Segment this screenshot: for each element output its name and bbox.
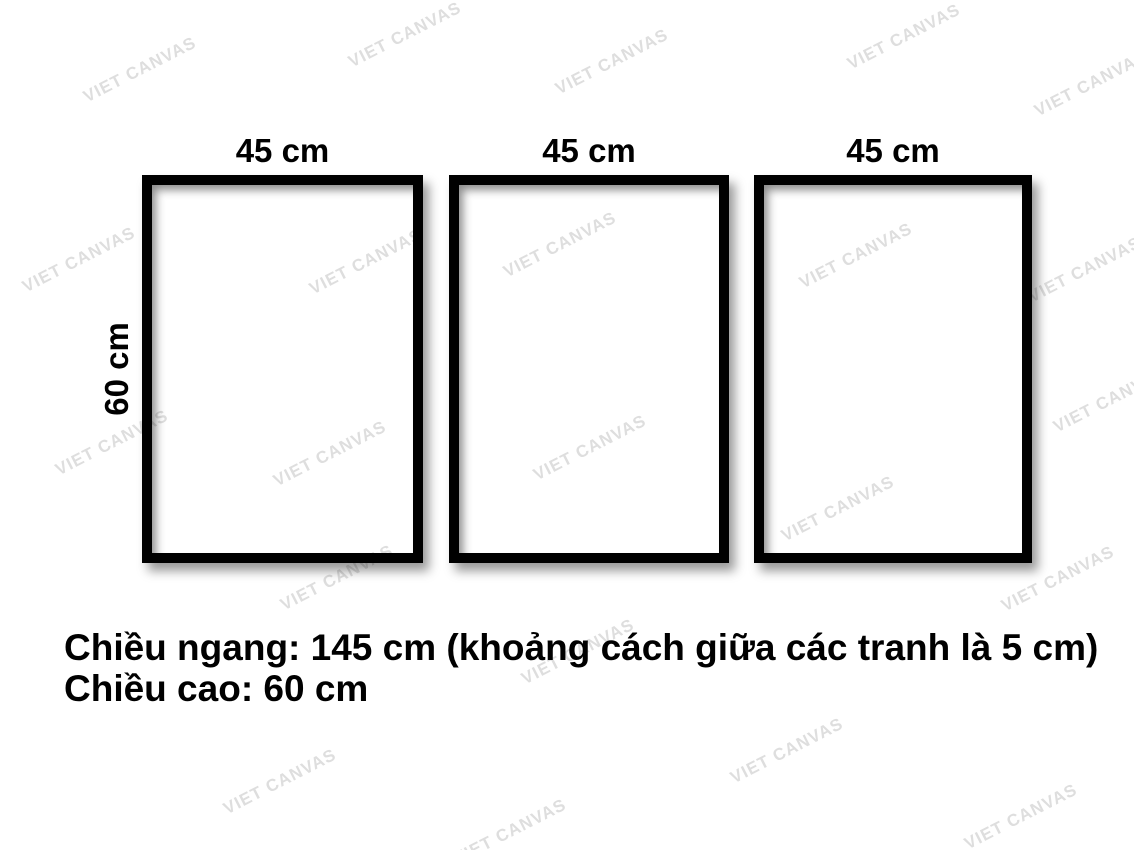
watermark-text: VIET CANVAS — [450, 795, 570, 850]
watermark-text: VIET CANVAS — [1025, 233, 1134, 307]
watermark-text: VIET CANVAS — [220, 745, 340, 819]
caption: Chiều ngang: 145 cm (khoảng cách giữa cá… — [64, 627, 1098, 709]
picture-frame-3 — [754, 175, 1032, 563]
watermark-text: VIET CANVAS — [345, 0, 465, 72]
watermark-text: VIET CANVAS — [552, 25, 672, 99]
caption-line-horizontal: Chiều ngang: 145 cm (khoảng cách giữa cá… — [64, 627, 1098, 668]
watermark-text: VIET CANVAS — [19, 223, 139, 297]
watermark-text: VIET CANVAS — [844, 0, 964, 74]
picture-frame-1 — [142, 175, 423, 563]
width-label-frame-3: 45 cm — [754, 130, 1032, 172]
width-label-frame-1: 45 cm — [142, 130, 423, 172]
caption-line-vertical: Chiều cao: 60 cm — [64, 668, 1098, 709]
height-label: 60 cm — [98, 322, 136, 416]
watermark-text: VIET CANVAS — [80, 33, 200, 107]
watermark-text: VIET CANVAS — [1050, 363, 1134, 437]
dimension-diagram: VIET CANVASVIET CANVASVIET CANVASVIET CA… — [0, 0, 1134, 850]
watermark-text: VIET CANVAS — [961, 780, 1081, 850]
watermark-text: VIET CANVAS — [727, 714, 847, 788]
watermark-text: VIET CANVAS — [1031, 47, 1134, 121]
picture-frame-2 — [449, 175, 729, 563]
width-label-frame-2: 45 cm — [449, 130, 729, 172]
